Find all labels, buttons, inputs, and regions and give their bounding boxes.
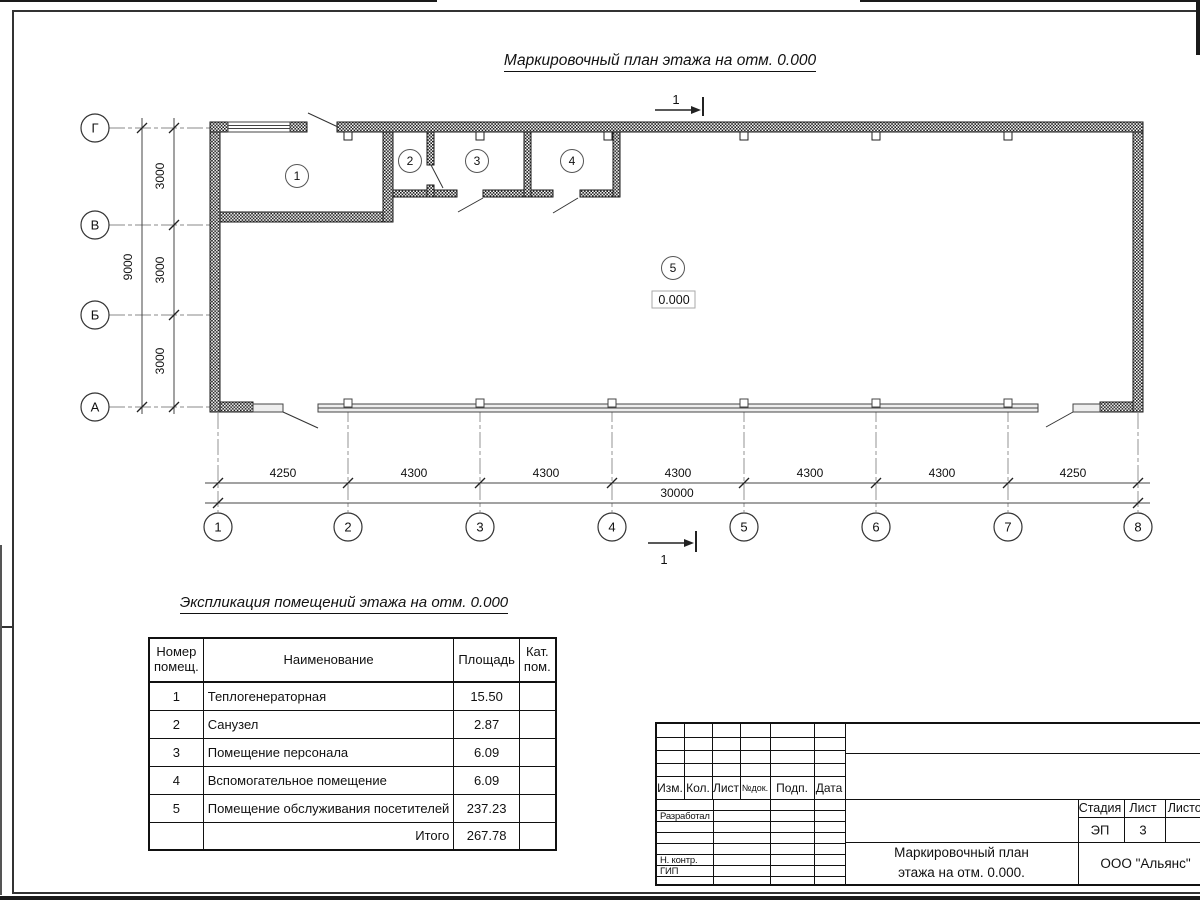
axis-letter-a: А xyxy=(91,400,100,415)
axis-labels-left: Г В Б А xyxy=(91,121,100,415)
elevation-mark: 0.000 xyxy=(652,291,695,308)
room-marker-2: 2 xyxy=(407,154,414,168)
axis-number-1: 1 xyxy=(214,520,221,535)
axis-number-8: 8 xyxy=(1134,520,1141,535)
dimensions-left: 3000 3000 3000 9000 xyxy=(121,118,179,414)
room-name: Санузел xyxy=(203,710,454,738)
room-area: 6.09 xyxy=(454,738,520,766)
room-number: 3 xyxy=(149,738,203,766)
grid-lines xyxy=(109,128,1138,512)
scan-artifact xyxy=(0,896,1200,900)
dim-bottom-1: 4300 xyxy=(401,466,428,480)
room-number: 2 xyxy=(149,710,203,738)
section-label-top: 1 xyxy=(672,92,679,107)
sheet-frame-bottom xyxy=(12,892,1200,894)
room-category xyxy=(519,766,555,794)
title-block: Изм. Кол. Лист №док. Подп. Дата Разработ… xyxy=(655,722,1200,886)
table-total-row: Итого 267.78 xyxy=(149,822,556,850)
axis-letter-b: Б xyxy=(91,308,100,323)
room-area: 237.23 xyxy=(454,794,520,822)
floor-plan-drawing: 3000 3000 3000 9000 4250 4300 4300 4300 … xyxy=(0,0,1200,580)
table-row: 1 Теплогенераторная 15.50 xyxy=(149,682,556,710)
dim-bottom-6: 4250 xyxy=(1060,466,1087,480)
axis-number-4: 4 xyxy=(608,520,615,535)
tb-stage-value: ЭП xyxy=(1091,823,1110,838)
room-name: Помещение обслуживания посетителей xyxy=(203,794,454,822)
room-number: 5 xyxy=(149,794,203,822)
tb-col-kol: Кол. xyxy=(686,781,710,795)
room-name: Помещение персонала xyxy=(203,738,454,766)
tb-role-gip: ГИП xyxy=(660,866,678,877)
room-area: 2.87 xyxy=(454,710,520,738)
room-name: Вспомогательное помещение xyxy=(203,766,454,794)
scan-artifact xyxy=(0,545,2,895)
tb-sheets-label: Листов xyxy=(1168,801,1200,815)
windows xyxy=(228,122,1100,412)
section-arrow xyxy=(691,106,701,114)
total-area: 267.78 xyxy=(454,822,520,850)
dim-bottom-3: 4300 xyxy=(665,466,692,480)
tb-doc-title: Маркировочный план этажа на отм. 0.000. xyxy=(845,842,1078,884)
room-marker-5: 5 xyxy=(670,261,677,275)
total-label: Итого xyxy=(203,822,454,850)
room-category xyxy=(519,738,555,766)
axis-number-6: 6 xyxy=(872,520,879,535)
section-mark-top: 1 xyxy=(655,92,703,116)
elevation-value: 0.000 xyxy=(658,293,689,307)
col-header-number: Номер помещ. xyxy=(149,638,203,682)
axis-number-7: 7 xyxy=(1004,520,1011,535)
room-category xyxy=(519,682,555,710)
tb-role-developed: Разработал xyxy=(660,811,710,822)
doors xyxy=(283,113,1073,428)
dim-bottom-2: 4300 xyxy=(533,466,560,480)
drawing-sheet: { "drawing": { "plan_title": "Маркировоч… xyxy=(0,0,1200,900)
tb-sheet-label: Лист xyxy=(1129,801,1156,815)
tb-col-list: Лист xyxy=(713,781,739,795)
col-header-area: Площадь xyxy=(454,638,520,682)
room-marker-1: 1 xyxy=(294,169,301,183)
dim-bottom-5: 4300 xyxy=(929,466,956,480)
room-category xyxy=(519,794,555,822)
col-header-name: Наименование xyxy=(203,638,454,682)
walls xyxy=(210,122,1143,412)
tb-col-podp: Подп. xyxy=(776,781,808,795)
dim-bottom-total: 30000 xyxy=(660,486,694,500)
table-row: 5 Помещение обслуживания посетителей 237… xyxy=(149,794,556,822)
room-marker-3: 3 xyxy=(474,154,481,168)
tb-role-ncontr: Н. контр. xyxy=(660,855,697,866)
section-label-bottom: 1 xyxy=(660,552,667,567)
room-category xyxy=(519,710,555,738)
room-number: 1 xyxy=(149,682,203,710)
room-number: 4 xyxy=(149,766,203,794)
room-area: 6.09 xyxy=(454,766,520,794)
axis-number-3: 3 xyxy=(476,520,483,535)
tb-sheet-value: 3 xyxy=(1139,823,1146,838)
table-row: 2 Санузел 2.87 xyxy=(149,710,556,738)
tb-stage-label: Стадия xyxy=(1079,801,1122,815)
axis-letter-v: В xyxy=(91,218,100,233)
tb-company: ООО "Альянс" xyxy=(1078,842,1200,884)
table-row: 4 Вспомогательное помещение 6.09 xyxy=(149,766,556,794)
explication-title: Экспликация помещений этажа на отм. 0.00… xyxy=(148,594,540,611)
tb-col-data: Дата xyxy=(816,781,843,795)
tb-col-izm: Изм. xyxy=(657,781,683,795)
table-row: 3 Помещение персонала 6.09 xyxy=(149,738,556,766)
dim-left-0: 3000 xyxy=(153,162,167,189)
dim-left-2: 3000 xyxy=(153,347,167,374)
col-header-category: Кат. пом. xyxy=(519,638,555,682)
axis-number-5: 5 xyxy=(740,520,747,535)
pilasters xyxy=(344,132,1012,140)
tb-col-doc: №док. xyxy=(742,783,768,793)
room-area: 15.50 xyxy=(454,682,520,710)
dim-left-1: 3000 xyxy=(153,256,167,283)
dim-left-total: 9000 xyxy=(121,253,135,280)
axis-letter-g: Г xyxy=(91,121,98,136)
axis-number-2: 2 xyxy=(344,520,351,535)
dim-bottom-0: 4250 xyxy=(270,466,297,480)
room-name: Теплогенераторная xyxy=(203,682,454,710)
dim-bottom-4: 4300 xyxy=(797,466,824,480)
section-arrow xyxy=(684,539,694,547)
room-marker-4: 4 xyxy=(569,154,576,168)
axis-markers-left xyxy=(81,114,109,421)
explication-table: Номер помещ. Наименование Площадь Кат. п… xyxy=(148,637,557,851)
section-mark-bottom: 1 xyxy=(648,531,696,567)
